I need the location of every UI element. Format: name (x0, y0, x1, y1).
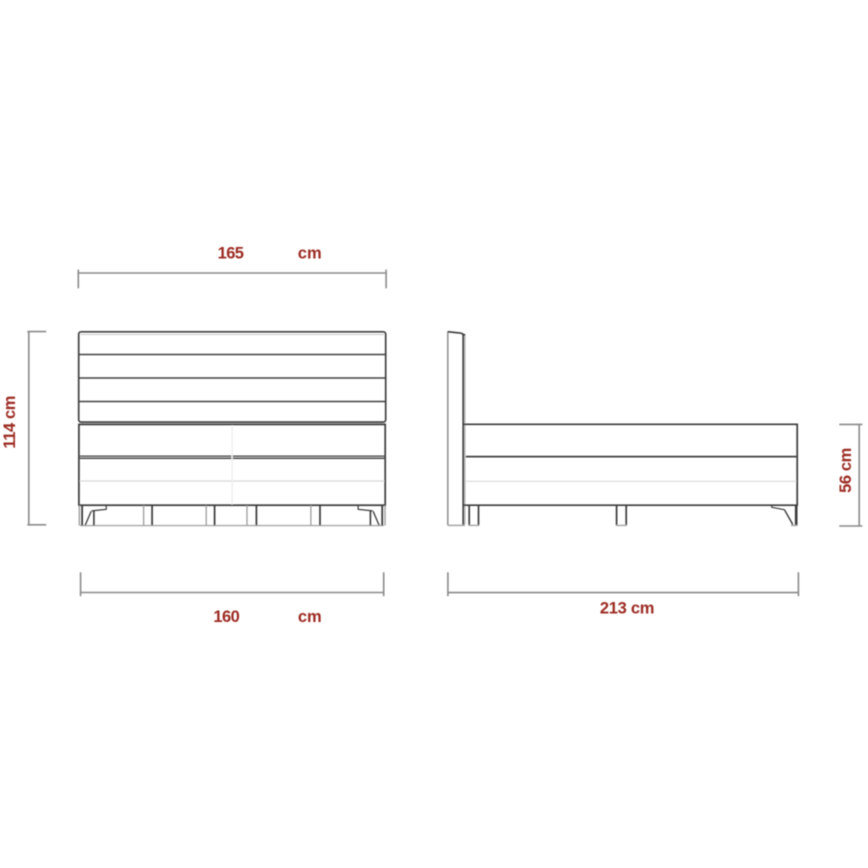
svg-text:160: 160 (213, 608, 239, 626)
svg-text:56 cm: 56 cm (837, 448, 855, 493)
svg-text:213 cm: 213 cm (600, 600, 654, 618)
svg-text:114 cm: 114 cm (1, 396, 19, 449)
svg-text:cm: cm (298, 244, 322, 262)
svg-text:cm: cm (298, 608, 322, 626)
svg-text:165: 165 (218, 244, 244, 262)
